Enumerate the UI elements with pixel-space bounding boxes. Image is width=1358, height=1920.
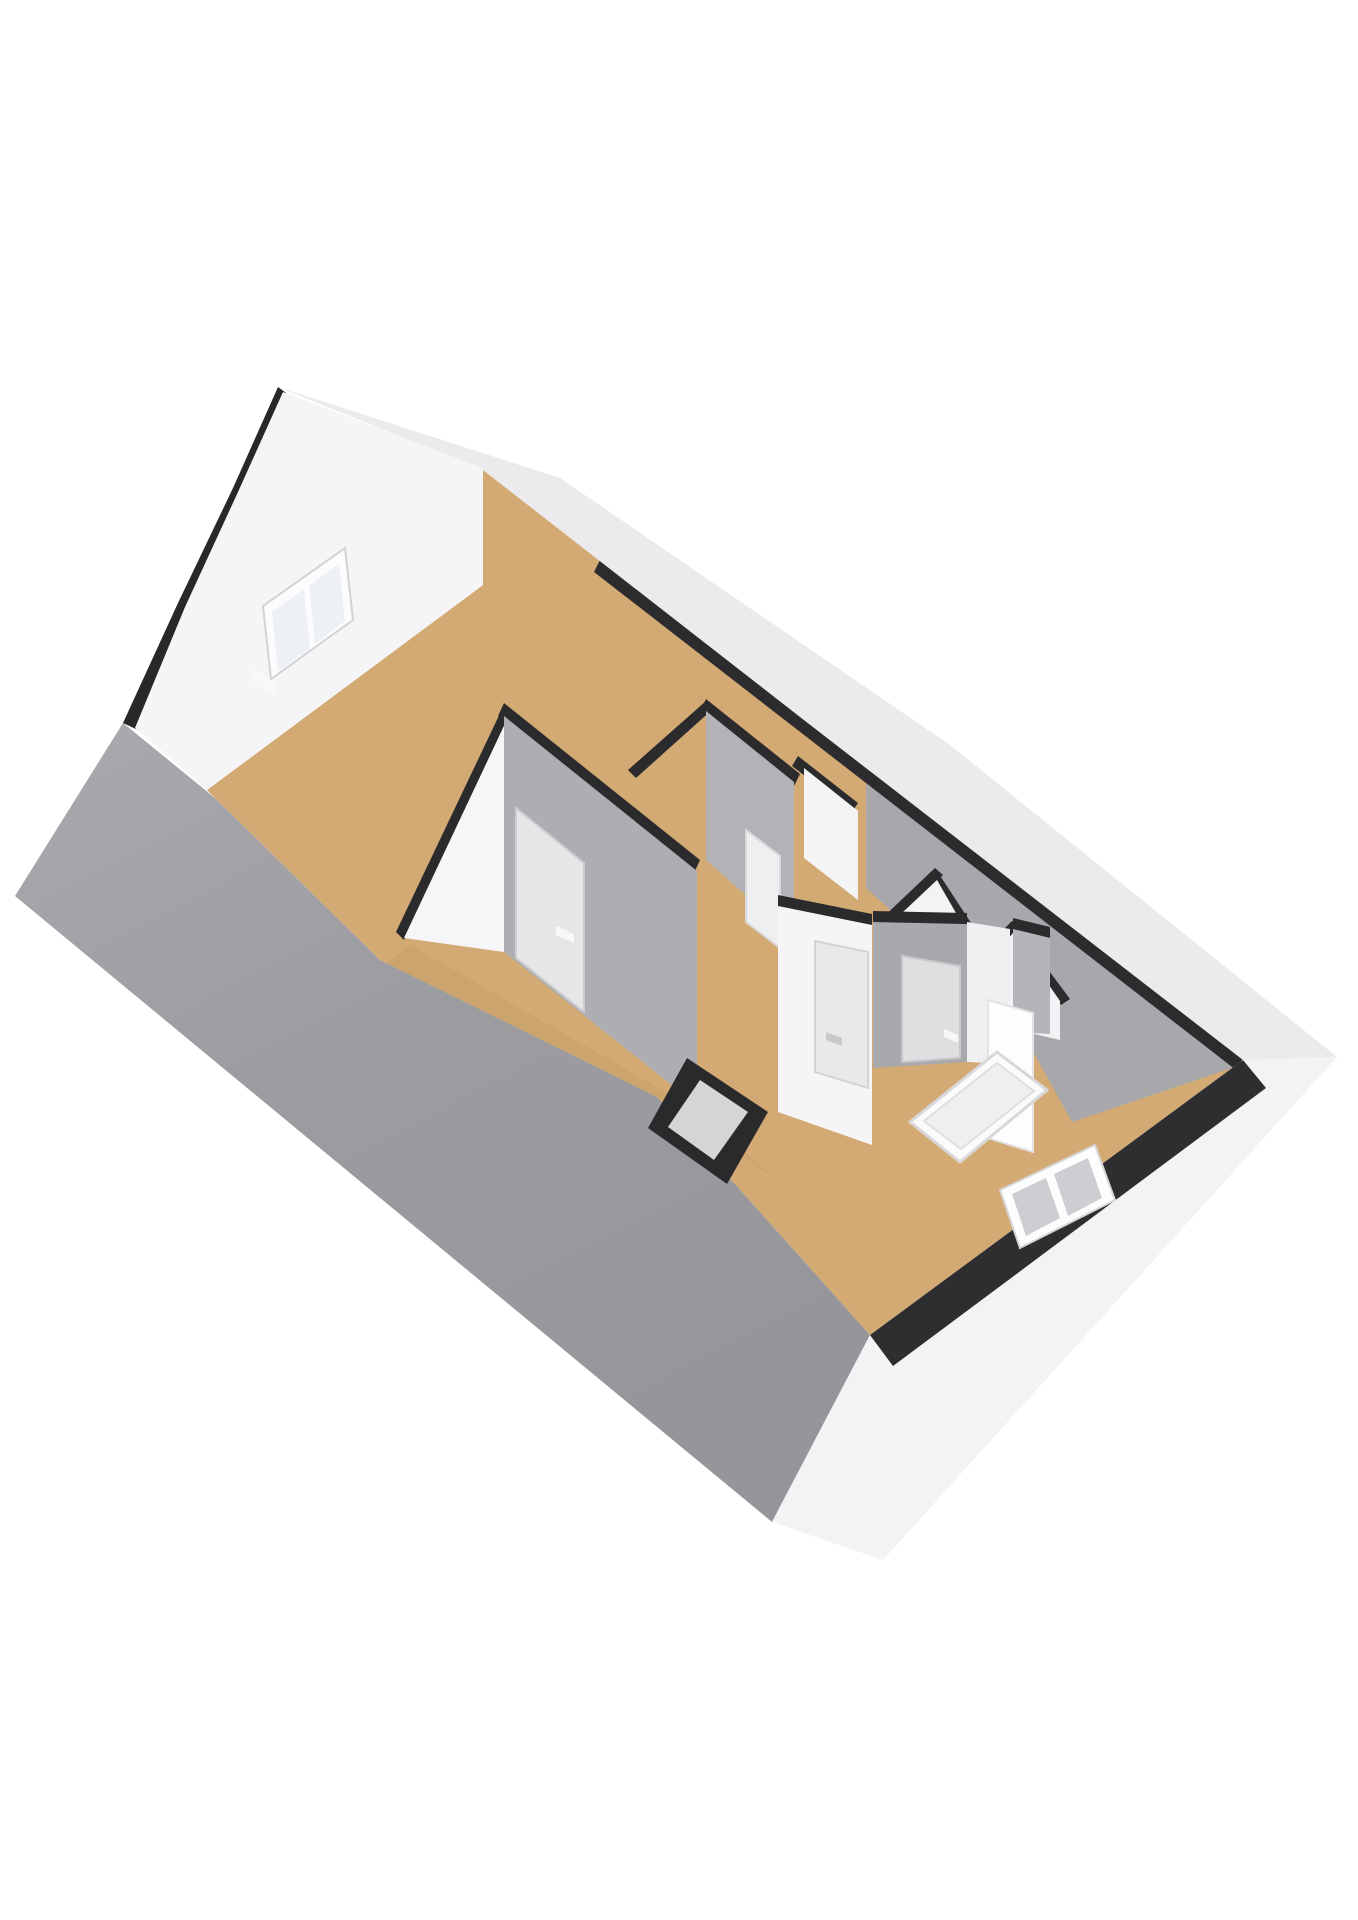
bottom-room-door-left [815, 941, 868, 1088]
bottom-room-door-right [902, 956, 960, 1062]
shape-layer [15, 387, 1337, 1560]
floorplan-stage [0, 0, 1358, 1920]
floorplan-3d-render [0, 0, 1358, 1920]
